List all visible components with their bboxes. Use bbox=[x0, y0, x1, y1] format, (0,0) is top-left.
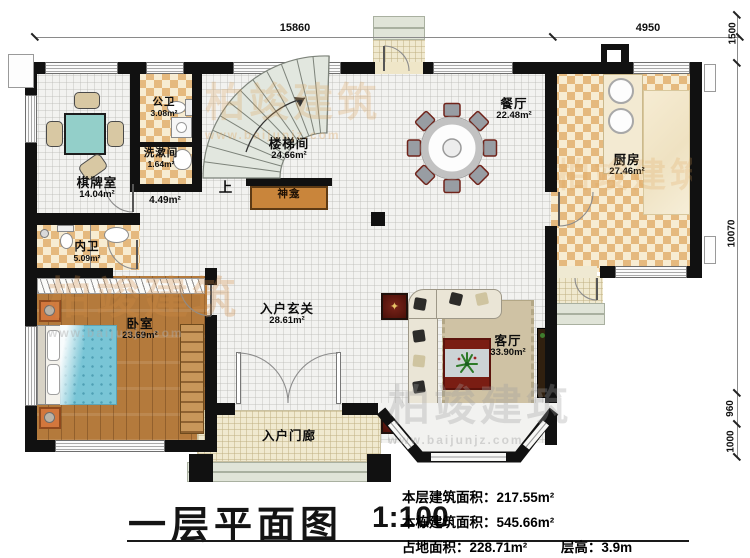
nightstand-lamp bbox=[44, 412, 55, 423]
wall bbox=[205, 268, 217, 285]
sofa-pillow bbox=[412, 329, 426, 343]
kitchen-sink bbox=[608, 108, 634, 134]
window bbox=[25, 326, 37, 406]
stat-footprint-height: 占地面积：228.71m² 层高：3.9m bbox=[402, 536, 632, 556]
shower-head bbox=[40, 229, 49, 238]
toilet-tank bbox=[57, 225, 74, 232]
room-label-canting: 餐厅 22.48m² bbox=[496, 97, 531, 122]
star-ornament-icon: ✦ bbox=[390, 415, 399, 427]
floor-plan: ✦ ✦ bbox=[0, 0, 750, 558]
title-block: 一层平面图 1:100 本层建筑面积：217.55m² 本栋建筑面积：545.6… bbox=[0, 484, 750, 558]
shrine-back-wall bbox=[246, 178, 332, 186]
window bbox=[633, 62, 690, 74]
wall bbox=[130, 184, 202, 192]
kitchen-worktop bbox=[643, 90, 690, 215]
dim-label-right-4: 1000 bbox=[726, 430, 737, 452]
dim-label-right-3: 960 bbox=[725, 400, 736, 417]
kitchen-sink bbox=[608, 78, 634, 104]
porch-step bbox=[187, 472, 391, 482]
window bbox=[233, 62, 341, 74]
washer-drum bbox=[176, 122, 187, 133]
rear-step bbox=[373, 28, 425, 40]
coffee-table bbox=[443, 338, 491, 390]
kitchen-exit-floor bbox=[553, 276, 603, 303]
dim-label-top-2: 4950 bbox=[636, 22, 660, 34]
mahjong-table bbox=[64, 113, 106, 155]
entry-door-leaf bbox=[336, 352, 341, 404]
plan-stats: 本层建筑面积：217.55m² 本栋建筑面积：545.66m² 占地面积：228… bbox=[402, 486, 632, 558]
wall bbox=[25, 268, 113, 278]
porch-pillar bbox=[367, 454, 391, 482]
window bbox=[615, 266, 687, 278]
stat-floor-area: 本层建筑面积：217.55m² bbox=[402, 486, 632, 506]
window bbox=[146, 62, 184, 74]
porch-pillar bbox=[189, 454, 213, 482]
wall bbox=[545, 226, 557, 445]
dim-label-right-2: 10070 bbox=[726, 220, 737, 248]
room-label-qipaishi: 棋牌室 14.04m² bbox=[77, 176, 118, 201]
room-label-gongwei: 公卫 3.08m² bbox=[151, 97, 178, 118]
ac-platform bbox=[8, 54, 34, 88]
dim-label-right-1: 1500 bbox=[728, 22, 739, 44]
chair bbox=[74, 92, 100, 109]
window bbox=[25, 95, 37, 143]
wall bbox=[130, 62, 140, 184]
room-label-chufang: 厨房 27.46m² bbox=[609, 153, 644, 178]
wall bbox=[192, 62, 202, 192]
wardrobe bbox=[180, 324, 204, 434]
wash-basin bbox=[104, 227, 129, 243]
pillow bbox=[47, 364, 60, 395]
shrine-label: 神龛 bbox=[278, 189, 301, 201]
sofa-seat bbox=[436, 289, 502, 319]
sofa-pillow bbox=[412, 354, 425, 367]
room-label-keting: 客厅 33.90m² bbox=[490, 334, 525, 359]
sofa-corner bbox=[408, 405, 438, 435]
room-label-xishujian: 洗漱间 1.64m² bbox=[144, 148, 179, 169]
wall bbox=[25, 213, 140, 225]
sofa-pillow bbox=[413, 297, 427, 311]
stairs-up-label: 上 bbox=[219, 180, 234, 195]
wall bbox=[690, 62, 702, 278]
window-sill bbox=[704, 64, 716, 92]
sofa-pillow bbox=[475, 292, 489, 306]
corridor-area-label: 4.49m² bbox=[149, 195, 181, 206]
kitchen-exit-opening bbox=[557, 266, 597, 278]
star-ornament-icon: ✦ bbox=[390, 301, 399, 313]
chair bbox=[46, 121, 63, 147]
wall bbox=[342, 403, 378, 415]
entry-door-leaf bbox=[236, 352, 241, 404]
window bbox=[45, 62, 118, 74]
sofa-pillow bbox=[412, 380, 426, 394]
window bbox=[55, 440, 165, 452]
kitchen-exit-step bbox=[549, 303, 605, 314]
side-table: ✦ bbox=[381, 293, 408, 320]
chimney-flue bbox=[607, 50, 621, 62]
window-sill bbox=[704, 236, 716, 264]
room-label-woshi: 卧室 23.69m² bbox=[122, 317, 157, 342]
sofa-pillow bbox=[475, 410, 489, 424]
room-label-neiwei: 内卫 5.09m² bbox=[74, 241, 101, 263]
side-table: ✦ bbox=[381, 407, 408, 434]
column bbox=[371, 212, 385, 226]
room-label-loutijian: 楼梯间 24.66m² bbox=[269, 137, 310, 162]
window bbox=[433, 62, 513, 74]
nightstand-lamp bbox=[44, 305, 55, 316]
kitchen-exit-step bbox=[549, 314, 605, 325]
room-label-menlang: 入户门廊 bbox=[262, 429, 316, 443]
bed-sheet-fold bbox=[60, 325, 84, 405]
toilet bbox=[60, 233, 73, 249]
room-label-xuanguan: 入户玄关 28.61m² bbox=[260, 302, 314, 327]
rear-step bbox=[373, 16, 425, 28]
sofa-seat bbox=[436, 405, 502, 435]
chair bbox=[107, 121, 124, 147]
wall bbox=[205, 315, 217, 443]
dimension-line-top bbox=[35, 37, 740, 38]
stat-building-area: 本栋建筑面积：545.66m² bbox=[402, 511, 632, 531]
dim-label-top-1: 15860 bbox=[280, 22, 311, 34]
closet-strip bbox=[37, 278, 205, 294]
porch-step bbox=[187, 462, 391, 472]
rear-vestibule-floor bbox=[373, 40, 425, 63]
wall bbox=[545, 62, 557, 192]
bed-headboard bbox=[37, 325, 46, 405]
rear-door-opening bbox=[375, 62, 423, 74]
pillow bbox=[47, 330, 60, 361]
